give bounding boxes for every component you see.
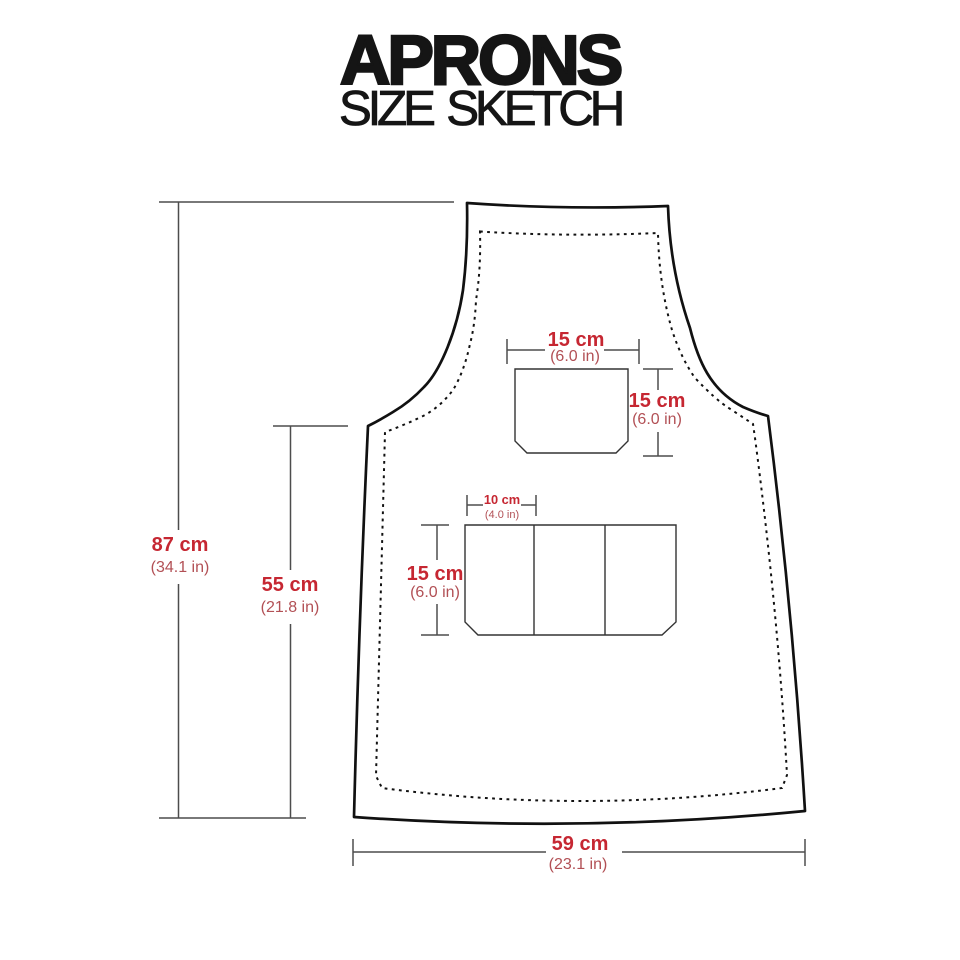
svg-text:15 cm: 15 cm (629, 390, 686, 412)
svg-text:(6.0 in): (6.0 in) (410, 584, 460, 601)
svg-text:59 cm: 59 cm (552, 833, 609, 855)
svg-text:(6.0 in): (6.0 in) (632, 411, 682, 428)
svg-text:SIZE SKETCH: SIZE SKETCH (339, 81, 622, 136)
svg-text:(4.0 in): (4.0 in) (485, 509, 519, 521)
svg-text:(6.0 in): (6.0 in) (550, 348, 600, 365)
svg-text:10 cm: 10 cm (484, 492, 520, 507)
svg-text:15 cm: 15 cm (407, 563, 464, 585)
svg-text:(34.1 in): (34.1 in) (151, 559, 210, 576)
svg-text:(21.8 in): (21.8 in) (261, 599, 320, 616)
svg-text:(23.1 in): (23.1 in) (549, 856, 608, 873)
svg-text:55 cm: 55 cm (262, 574, 319, 596)
svg-text:87 cm: 87 cm (152, 534, 209, 556)
